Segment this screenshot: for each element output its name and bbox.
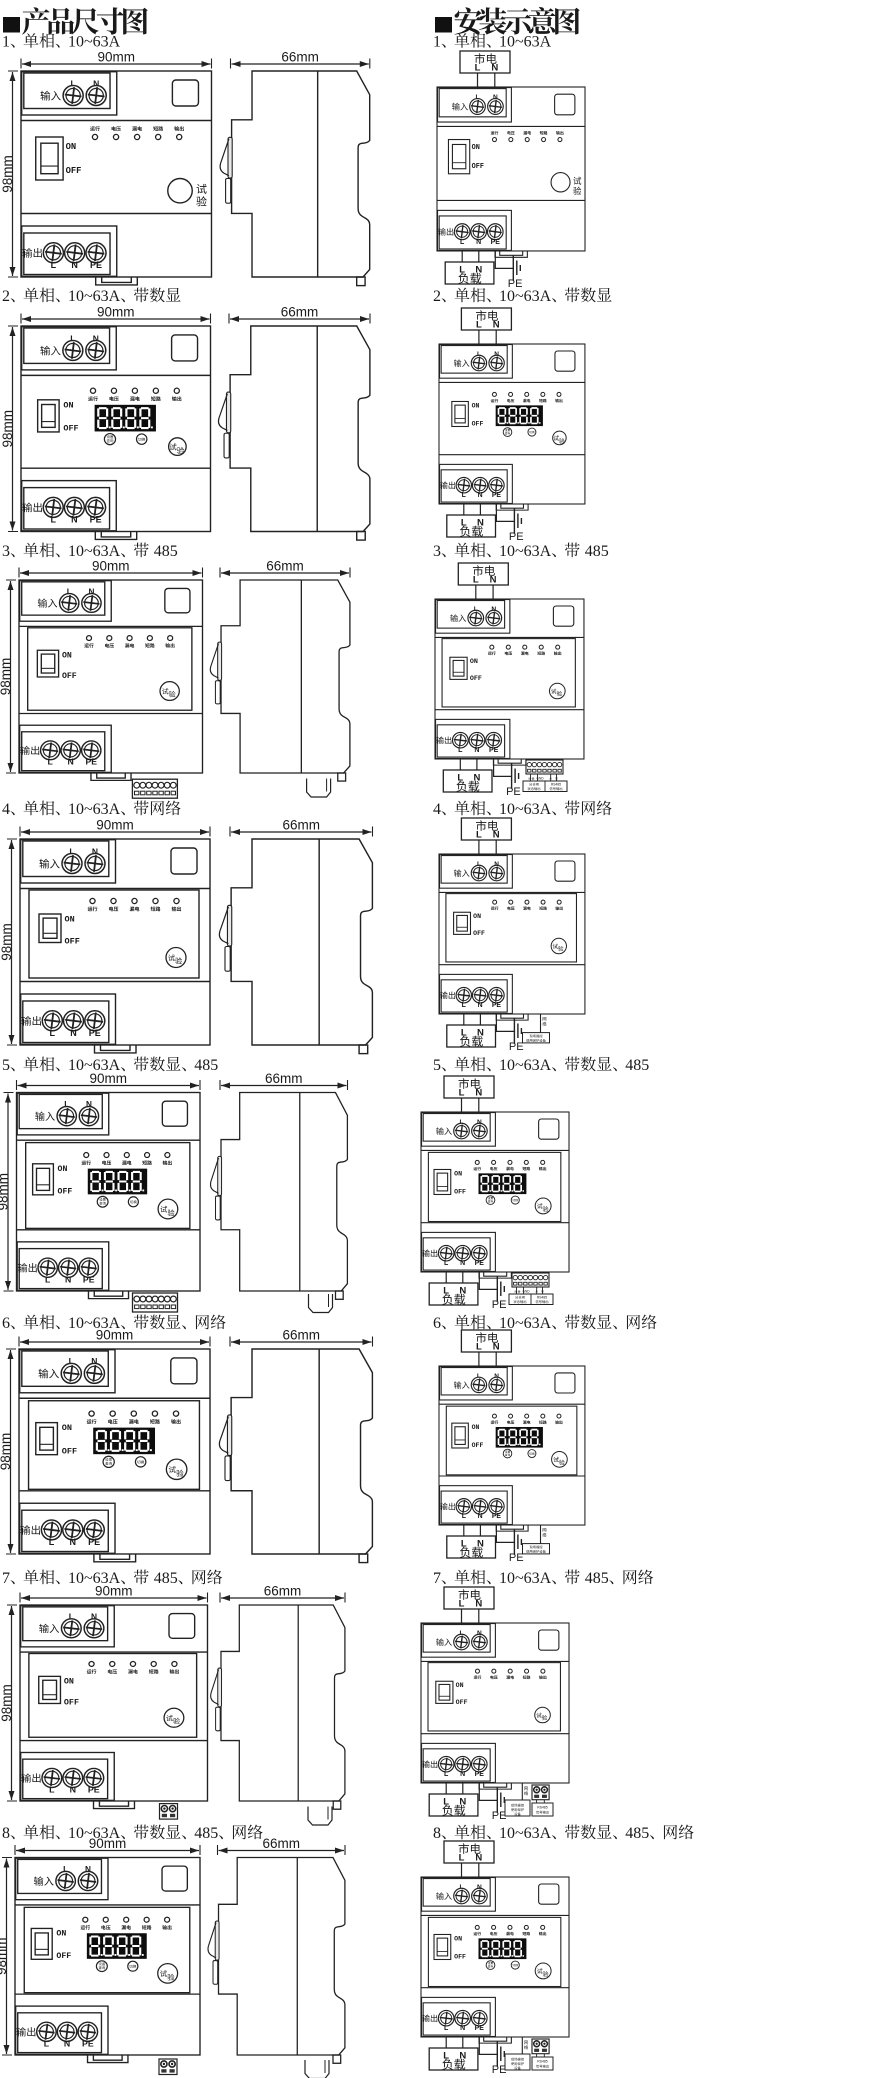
svg-text:L: L (476, 1342, 482, 1353)
svg-text:10~63A: 10~63A (68, 288, 121, 305)
svg-text:N: N (493, 1342, 500, 1353)
svg-text:8: 8 (433, 1825, 441, 1842)
svg-text:66mm: 66mm (265, 1071, 303, 1086)
svg-text:PE: PE (492, 1810, 507, 1822)
svg-text:N: N (459, 1286, 466, 1297)
svg-text:90mm: 90mm (89, 1836, 127, 1851)
svg-text:5: 5 (2, 1057, 10, 1074)
svg-text:1: 1 (433, 34, 441, 51)
svg-text:98mm: 98mm (0, 410, 15, 448)
svg-text:8: 8 (2, 1825, 10, 1842)
svg-text:10~63A: 10~63A (68, 801, 121, 818)
svg-text:4: 4 (2, 801, 10, 818)
svg-text:PE: PE (506, 786, 521, 798)
svg-text:10~63A: 10~63A (499, 801, 552, 818)
svg-text:485: 485 (585, 1570, 609, 1587)
svg-text:98mm: 98mm (0, 1684, 14, 1722)
svg-text:90mm: 90mm (92, 558, 130, 573)
svg-text:3: 3 (433, 543, 441, 560)
svg-text:98mm: 98mm (0, 923, 14, 961)
svg-text:1: 1 (2, 34, 10, 51)
svg-text:6: 6 (433, 1315, 441, 1332)
svg-text:485: 485 (585, 543, 609, 560)
svg-text:485: 485 (625, 1825, 649, 1842)
svg-text:90mm: 90mm (95, 1583, 133, 1598)
svg-text:N: N (475, 1599, 482, 1610)
svg-text:4: 4 (433, 801, 441, 818)
svg-text:3: 3 (2, 543, 10, 560)
svg-text:10~63A: 10~63A (499, 1570, 552, 1587)
svg-text:PE: PE (492, 2064, 507, 2076)
svg-text:N: N (493, 320, 500, 331)
svg-text:L: L (459, 1088, 465, 1099)
svg-text:90mm: 90mm (97, 49, 135, 64)
svg-text:10~63A: 10~63A (499, 288, 552, 305)
svg-text:PE: PE (509, 1041, 524, 1053)
svg-text:66mm: 66mm (264, 1583, 302, 1598)
svg-text:N: N (477, 1028, 484, 1039)
svg-text:L: L (473, 575, 479, 586)
svg-text:N: N (477, 518, 484, 529)
svg-text:L: L (459, 1853, 465, 1864)
svg-text:RS485: RS485 (537, 1806, 547, 1810)
svg-text:RS485: RS485 (551, 783, 561, 787)
svg-text:N: N (491, 63, 498, 74)
svg-text:L: L (476, 830, 482, 841)
svg-text:10~63A: 10~63A (499, 1825, 552, 1842)
svg-text:7: 7 (433, 1570, 441, 1587)
svg-text:L: L (475, 63, 481, 74)
svg-text:485: 485 (625, 1057, 649, 1074)
svg-text:485: 485 (154, 1570, 178, 1587)
svg-text:N: N (475, 1853, 482, 1864)
svg-text:10~63A: 10~63A (499, 1057, 552, 1074)
svg-text:66mm: 66mm (262, 1836, 300, 1851)
svg-text:90mm: 90mm (96, 1327, 134, 1342)
svg-text:PE: PE (509, 1552, 524, 1564)
svg-text:98mm: 98mm (0, 1433, 13, 1471)
svg-text:6: 6 (2, 1315, 10, 1332)
svg-text:485: 485 (154, 543, 178, 560)
svg-text:10~63A: 10~63A (68, 34, 121, 51)
svg-text:90mm: 90mm (97, 304, 135, 319)
svg-text:485: 485 (194, 1825, 218, 1842)
svg-text:485: 485 (194, 1057, 218, 1074)
svg-text:66mm: 66mm (281, 49, 319, 64)
svg-text:98mm: 98mm (0, 1173, 11, 1211)
svg-text:66mm: 66mm (266, 558, 304, 573)
svg-text:66mm: 66mm (282, 817, 320, 832)
svg-text:N: N (459, 2051, 466, 2062)
svg-text:2: 2 (2, 288, 10, 305)
svg-text:66mm: 66mm (282, 1327, 320, 1342)
svg-text:N: N (475, 1088, 482, 1099)
svg-text:RS485: RS485 (537, 1296, 547, 1300)
svg-text:PE: PE (492, 1299, 507, 1311)
svg-text:N: N (490, 575, 497, 586)
svg-text:N: N (493, 830, 500, 841)
svg-text:N: N (475, 265, 482, 276)
svg-text:10~63A: 10~63A (499, 543, 552, 560)
svg-text:98mm: 98mm (0, 1937, 9, 1975)
svg-text:7: 7 (2, 1570, 10, 1587)
svg-text:2: 2 (433, 288, 441, 305)
svg-text:PE: PE (509, 531, 524, 543)
svg-text:90mm: 90mm (89, 1071, 127, 1086)
svg-text:98mm: 98mm (0, 658, 13, 696)
svg-text:N: N (473, 773, 480, 784)
svg-text:90mm: 90mm (96, 817, 134, 832)
svg-text:5: 5 (433, 1057, 441, 1074)
svg-text:L: L (476, 320, 482, 331)
svg-text:RS485: RS485 (537, 2060, 547, 2064)
svg-text:N: N (477, 1539, 484, 1550)
svg-text:L: L (459, 1599, 465, 1610)
svg-text:98mm: 98mm (0, 155, 15, 193)
svg-text:66mm: 66mm (281, 304, 319, 319)
svg-text:N: N (459, 1797, 466, 1808)
svg-text:10~63A: 10~63A (499, 34, 552, 51)
